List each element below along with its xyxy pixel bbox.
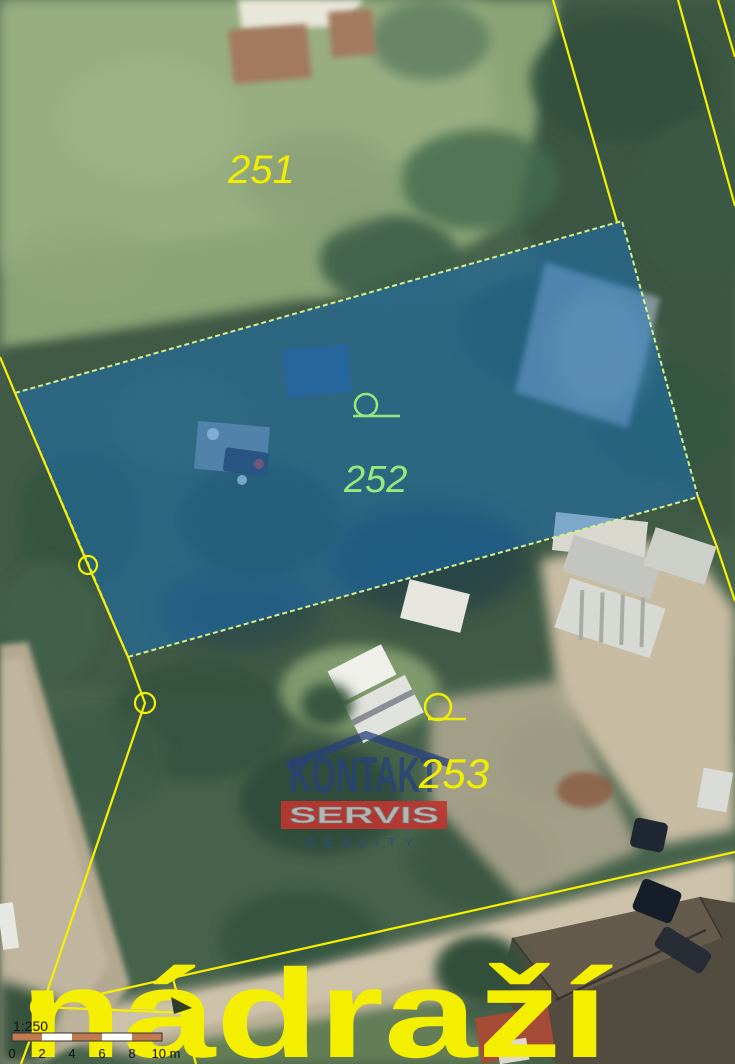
aerial-map-view[interactable]: KONTAKT SERVIS REALITY 252 253 251 nádra… bbox=[0, 0, 735, 1064]
parcel-label-252[interactable]: 252 bbox=[343, 459, 407, 501]
scale-ratio-label: 1:250 bbox=[13, 1018, 48, 1034]
parcel-label-253[interactable]: 253 bbox=[418, 750, 489, 797]
watermark-brand-bottom: REALITY bbox=[306, 836, 422, 850]
scale-tick-10m: 10 m bbox=[152, 1046, 181, 1061]
watermark-brand-mid: SERVIS bbox=[289, 802, 439, 828]
scale-tick-4: 4 bbox=[68, 1046, 75, 1061]
scale-tick-6: 6 bbox=[98, 1046, 105, 1061]
scale-tick-8: 8 bbox=[128, 1046, 135, 1061]
parcel-label-251[interactable]: 251 bbox=[227, 148, 295, 192]
map-canvas[interactable]: KONTAKT SERVIS REALITY 252 253 251 nádra… bbox=[0, 0, 735, 1064]
watermark-brand-top: KONTAKT bbox=[289, 747, 439, 803]
place-label: nádraží bbox=[20, 943, 613, 1064]
scale-tick-0: 0 bbox=[8, 1046, 15, 1061]
scale-tick-2: 2 bbox=[38, 1046, 45, 1061]
